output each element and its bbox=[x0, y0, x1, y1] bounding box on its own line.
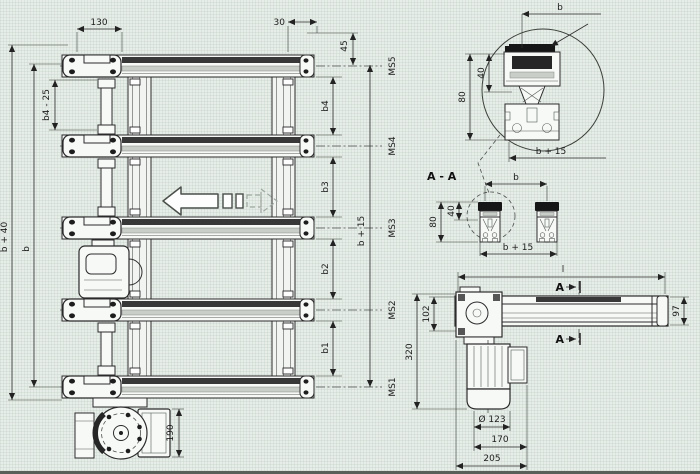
rail-ms1 bbox=[62, 376, 314, 398]
dim-dia-label: Ø 123 bbox=[478, 414, 505, 425]
detail-dim-40-label: 40 bbox=[477, 67, 487, 79]
section-dim-80-label: 80 bbox=[429, 216, 439, 228]
dim-45-label: 45 bbox=[340, 40, 350, 51]
ms-labels: MS5 MS4 MS3 MS2 MS1 bbox=[388, 56, 398, 396]
dim-b15: b + 15 bbox=[357, 65, 370, 387]
gap-dims: b4 b3 b2 b1 bbox=[316, 77, 342, 376]
dim-30: 30 bbox=[274, 18, 317, 52]
dim-102: 102 bbox=[422, 297, 456, 331]
dim-b1-label: b1 bbox=[321, 342, 331, 353]
section-marker-a-top: A bbox=[555, 281, 564, 294]
plan-view: 130 30 45 b4 - 25 b + 40 bbox=[0, 18, 398, 459]
rail-ms4 bbox=[62, 135, 314, 157]
transport-direction-arrow bbox=[163, 187, 277, 215]
dim-320-label: 320 bbox=[405, 343, 415, 360]
dim-b2-label: b2 bbox=[321, 263, 331, 274]
section-marker-a-bottom: A bbox=[555, 333, 564, 346]
side-drive-head bbox=[456, 287, 502, 344]
label-ms2: MS2 bbox=[388, 300, 398, 319]
section-view: A - A b 40 80 b + 15 bbox=[427, 170, 559, 256]
detail-dim-b15-label: b + 15 bbox=[536, 147, 566, 157]
dim-205-label: 205 bbox=[483, 454, 500, 464]
dim-30-label: 30 bbox=[274, 18, 286, 28]
dim-130: 130 bbox=[77, 18, 122, 52]
dim-b4-25: b4 - 25 bbox=[42, 80, 97, 130]
side-view: l A A bbox=[405, 265, 689, 470]
detail-view: b 40 80 b + 15 bbox=[458, 3, 606, 193]
dim-97-label: 97 bbox=[672, 305, 682, 316]
dim-170-label: 170 bbox=[491, 435, 508, 445]
dim-97: 97 bbox=[670, 297, 689, 325]
dim-b40-label: b + 40 bbox=[0, 222, 10, 253]
label-ms4: MS4 bbox=[388, 136, 398, 155]
dim-l-label: l bbox=[562, 265, 565, 275]
section-dim-40-label: 40 bbox=[447, 205, 457, 217]
drawing-sheet: 130 30 45 b4 - 25 b + 40 bbox=[0, 0, 700, 474]
label-ms5: MS5 bbox=[388, 56, 398, 75]
section-profile-left bbox=[478, 202, 502, 242]
dim-dia-123: Ø 123 bbox=[474, 411, 510, 431]
label-ms3: MS3 bbox=[388, 218, 398, 237]
detail-dim-80-label: 80 bbox=[458, 91, 468, 103]
rail-ms2 bbox=[62, 299, 314, 321]
dim-190-label: 190 bbox=[166, 424, 176, 441]
label-ms1: MS1 bbox=[388, 377, 398, 396]
dim-b4-label: b4 bbox=[321, 100, 331, 112]
detail-dim-b-label: b bbox=[557, 3, 563, 13]
dim-b3-label: b3 bbox=[321, 181, 331, 192]
section-dim-b-label: b bbox=[513, 173, 519, 183]
dim-130-label: 130 bbox=[90, 18, 107, 28]
rail-ms5 bbox=[62, 55, 314, 77]
dim-b15-label: b + 15 bbox=[357, 216, 367, 246]
section-dim-b15-label: b + 15 bbox=[503, 243, 533, 253]
dim-b-label: b bbox=[22, 246, 32, 252]
rail-ms3 bbox=[62, 217, 314, 239]
engineering-drawing: 130 30 45 b4 - 25 b + 40 bbox=[0, 0, 700, 474]
section-profile-right bbox=[535, 202, 559, 242]
dim-b4-25-label: b4 - 25 bbox=[42, 89, 52, 121]
dim-102-label: 102 bbox=[422, 305, 432, 322]
drive-unit bbox=[75, 398, 170, 459]
side-motor bbox=[467, 340, 527, 414]
section-title: A - A bbox=[427, 170, 457, 183]
detail-profile bbox=[504, 44, 560, 140]
dim-45: 45 bbox=[307, 33, 358, 65]
